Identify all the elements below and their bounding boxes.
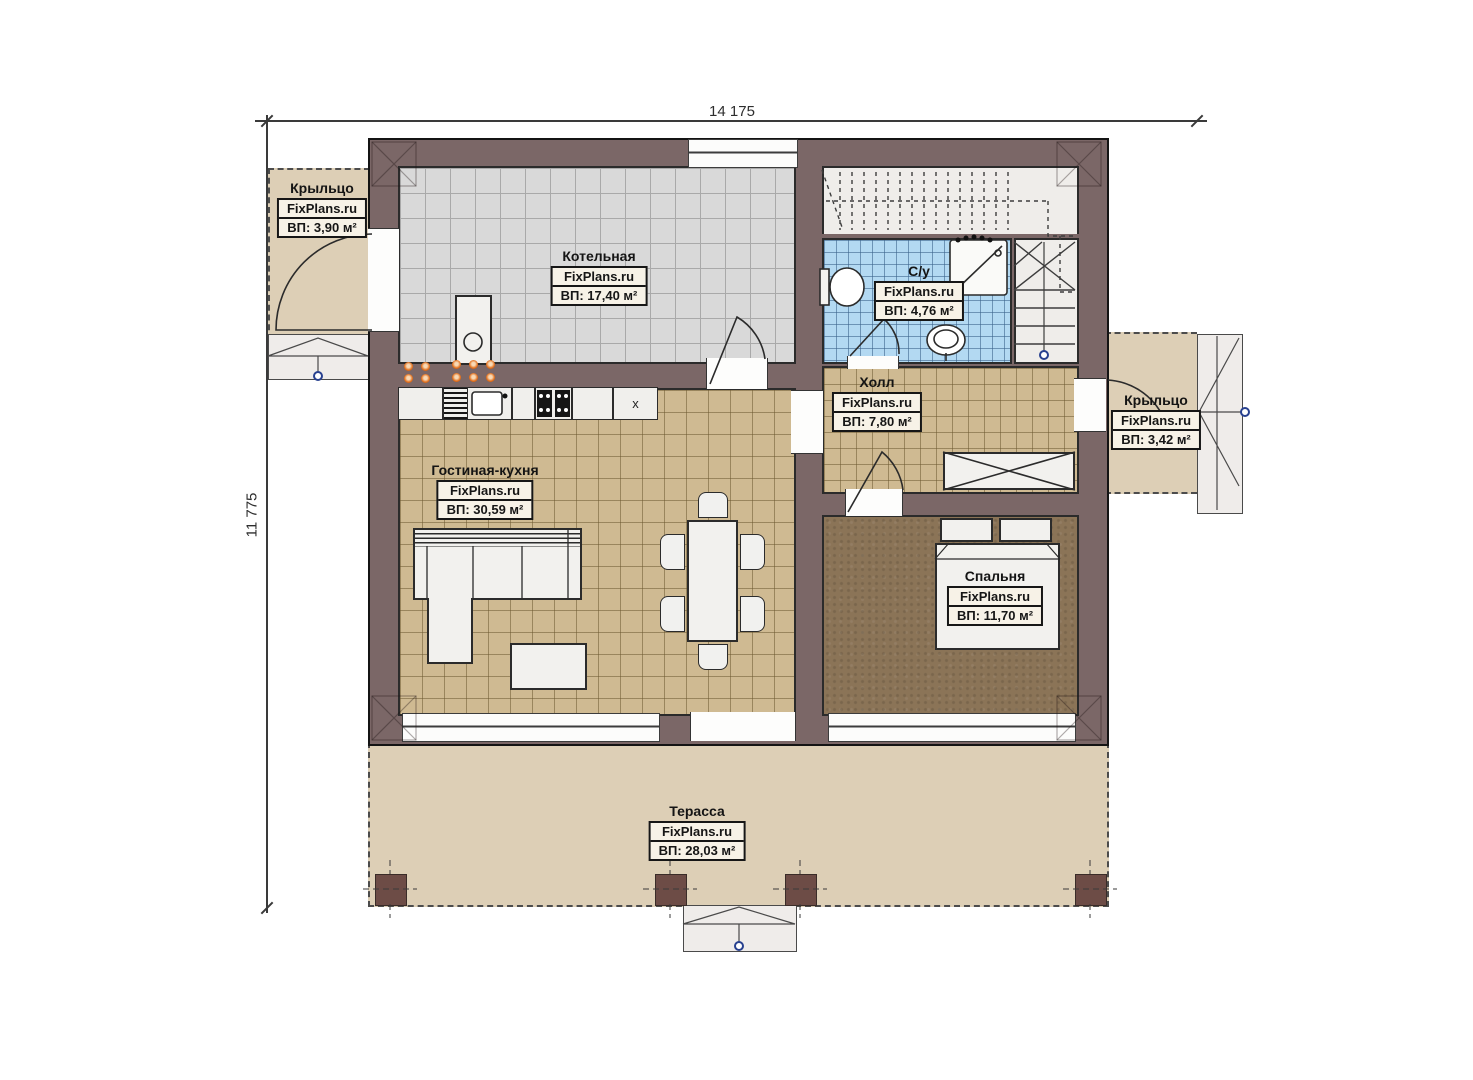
room-name: Терасса bbox=[649, 803, 746, 819]
chair bbox=[740, 534, 765, 570]
door-opening-bathroom bbox=[847, 356, 899, 369]
wall-light bbox=[486, 373, 495, 382]
dimension-line-top bbox=[255, 120, 1207, 122]
room-area: ВП: 11,70 м² bbox=[949, 605, 1041, 624]
wall-light bbox=[404, 362, 413, 371]
stairs-flight bbox=[1014, 238, 1079, 364]
door-opening-boiler-living bbox=[706, 358, 768, 389]
porch-right-steps bbox=[1197, 334, 1243, 514]
wardrobe bbox=[943, 452, 1075, 490]
room-label-porch-right: Крыльцо FixPlans.ru ВП: 3,42 м² bbox=[1111, 392, 1201, 450]
room-name: Котельная bbox=[551, 248, 648, 264]
room-watermark: FixPlans.ru bbox=[553, 268, 646, 285]
room-label-terrace: Терасса FixPlans.ru ВП: 28,03 м² bbox=[649, 803, 746, 861]
stairs-upper-zone bbox=[822, 166, 1079, 234]
terrace-post bbox=[655, 874, 687, 906]
room-area: ВП: 3,42 м² bbox=[1113, 429, 1199, 448]
terrace-door-opening bbox=[690, 712, 796, 741]
room-label-bedroom: Спальня FixPlans.ru ВП: 11,70 м² bbox=[947, 568, 1043, 626]
bed-pillow bbox=[940, 518, 993, 542]
window-top bbox=[688, 139, 798, 168]
room-name: Гостиная-кухня bbox=[431, 462, 538, 478]
wall-light bbox=[421, 374, 430, 383]
dimension-left-label: 11 775 bbox=[244, 487, 261, 544]
bed-pillow bbox=[999, 518, 1052, 542]
terrace-post bbox=[375, 874, 407, 906]
boiler-unit bbox=[455, 295, 492, 365]
window-bottom-living bbox=[402, 713, 660, 742]
room-name: Крыльцо bbox=[277, 180, 367, 196]
room-name: Холл bbox=[832, 374, 922, 390]
kitchen-cabinet-x-label: x bbox=[632, 396, 639, 411]
opening-living-hall bbox=[791, 390, 823, 454]
terrace-post bbox=[1075, 874, 1107, 906]
kitchen-cabinet bbox=[572, 387, 613, 420]
room-label-hall: Холл FixPlans.ru ВП: 7,80 м² bbox=[832, 374, 922, 432]
sofa-chaise bbox=[427, 598, 473, 664]
wall-light bbox=[469, 360, 478, 369]
room-area: ВП: 17,40 м² bbox=[553, 285, 646, 304]
dining-table bbox=[687, 520, 738, 642]
kitchen-cabinet bbox=[512, 387, 535, 420]
kitchen-cabinet bbox=[398, 387, 443, 420]
door-opening-porch-left bbox=[368, 228, 399, 332]
dimension-top-label: 14 175 bbox=[703, 103, 761, 120]
wall-light bbox=[469, 373, 478, 382]
room-label-porch-left: Крыльцо FixPlans.ru ВП: 3,90 м² bbox=[277, 180, 367, 238]
chair bbox=[740, 596, 765, 632]
fridge bbox=[443, 387, 468, 420]
stove bbox=[535, 387, 572, 420]
wall-light bbox=[452, 373, 461, 382]
room-watermark: FixPlans.ru bbox=[876, 283, 962, 300]
terrace-steps bbox=[683, 905, 797, 952]
room-area: ВП: 4,76 м² bbox=[876, 300, 962, 319]
chair bbox=[660, 596, 685, 632]
room-area: ВП: 30,59 м² bbox=[439, 499, 532, 518]
chair bbox=[660, 534, 685, 570]
room-name: С/у bbox=[874, 263, 964, 279]
door-opening-porch-right bbox=[1074, 378, 1106, 432]
room-label-living-kitchen: Гостиная-кухня FixPlans.ru ВП: 30,59 м² bbox=[431, 462, 538, 520]
door-opening-bedroom bbox=[845, 489, 903, 516]
chair bbox=[698, 492, 728, 518]
wall-light bbox=[404, 374, 413, 383]
coffee-table bbox=[510, 643, 587, 690]
terrace-post bbox=[785, 874, 817, 906]
porch-left-steps bbox=[268, 334, 370, 380]
wall-light bbox=[421, 362, 430, 371]
room-watermark: FixPlans.ru bbox=[439, 482, 532, 499]
floor-plan: 14 175 11 775 x bbox=[0, 0, 1473, 1080]
room-watermark: FixPlans.ru bbox=[1113, 412, 1199, 429]
room-area: ВП: 28,03 м² bbox=[651, 840, 744, 859]
sofa bbox=[413, 528, 582, 600]
chair bbox=[698, 644, 728, 670]
room-area: ВП: 3,90 м² bbox=[279, 217, 365, 236]
room-area: ВП: 7,80 м² bbox=[834, 411, 920, 430]
kitchen-cabinet-x: x bbox=[613, 387, 658, 420]
room-label-boiler: Котельная FixPlans.ru ВП: 17,40 м² bbox=[551, 248, 648, 306]
kitchen-sink-unit bbox=[467, 387, 512, 420]
wall-light bbox=[486, 360, 495, 369]
wall-light bbox=[452, 360, 461, 369]
room-name: Спальня bbox=[947, 568, 1043, 584]
room-watermark: FixPlans.ru bbox=[949, 588, 1041, 605]
room-watermark: FixPlans.ru bbox=[834, 394, 920, 411]
sofa-back bbox=[415, 530, 580, 547]
room-watermark: FixPlans.ru bbox=[651, 823, 744, 840]
room-watermark: FixPlans.ru bbox=[279, 200, 365, 217]
window-bottom-bedroom bbox=[828, 713, 1076, 742]
room-name: Крыльцо bbox=[1111, 392, 1201, 408]
room-label-bathroom: С/у FixPlans.ru ВП: 4,76 м² bbox=[874, 263, 964, 321]
